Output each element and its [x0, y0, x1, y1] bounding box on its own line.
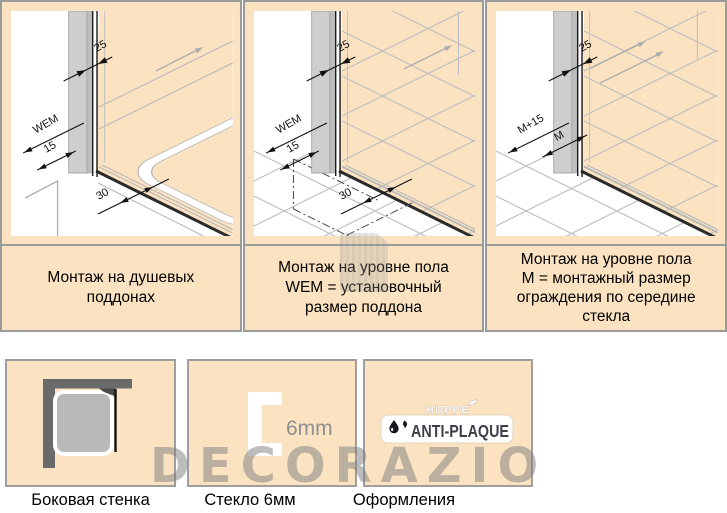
feature-caption-designs: Оформления [319, 491, 489, 511]
caption-line: стекла [582, 307, 630, 326]
floor-level-wem-drawing: 25 WEM 15 [254, 11, 476, 236]
panel-floor-level-m: 25 M+15 M Монтаж на уровн [485, 0, 727, 332]
tray-installation-svg: 25 WEM 15 [11, 11, 233, 236]
floor-level-m-drawing: 25 M+15 M [496, 11, 718, 236]
side-wall-icon [7, 361, 174, 485]
svg-text:15: 15 [42, 139, 59, 155]
svg-text:WEM: WEM [274, 113, 304, 137]
caption-line: WEM = установочный [285, 278, 441, 298]
droplet-highlight [391, 428, 393, 431]
panel-caption: Монтаж на уровне пола WEM = установочный… [245, 244, 483, 330]
shower-area [96, 11, 233, 236]
svg-text:15: 15 [284, 139, 301, 155]
anti-plaque-logo: HUPPE ANTI-PLAQUE [365, 361, 531, 485]
feature-anti-plaque: HUPPE ANTI-PLAQUE [363, 359, 533, 487]
svg-text:M+15: M+15 [516, 112, 546, 136]
panel-caption: Монтаж на душевых поддонах [2, 244, 240, 330]
glass-thickness-label: 6mm [286, 417, 333, 440]
panel-tray-installation: 25 WEM 15 [0, 0, 242, 332]
brand-flag [469, 400, 476, 406]
caption-line: размер поддона [305, 298, 422, 318]
anti-plaque-text: ANTI-PLAQUE [411, 421, 509, 441]
caption-line: Монтаж на уровне пола [521, 250, 692, 269]
feature-side-wall [5, 359, 176, 487]
catalog-page: 25 WEM 15 [0, 0, 727, 513]
caption-line: ограждения по середине [517, 288, 696, 307]
caption-line: М = монтажный размер [522, 269, 691, 288]
panel-caption: Монтаж на уровне пола М = монтажный разм… [487, 244, 725, 330]
caption-line: поддонах [87, 288, 155, 308]
installation-diagram-table: 25 WEM 15 [0, 0, 727, 332]
tray-installation-drawing: 25 WEM 15 [11, 11, 233, 236]
svg-text:WEM: WEM [31, 113, 61, 137]
floor-level-wem-svg: 25 WEM 15 [254, 11, 476, 236]
caption-line: Монтаж на уровне пола [278, 258, 449, 278]
panel-floor-level-wem: 25 WEM 15 [243, 0, 485, 332]
huppe-brand-text: HUPPE [426, 404, 470, 416]
feature-caption-glass: Стекло 6мм [165, 491, 335, 511]
shower-area [339, 11, 476, 236]
caption-line: Монтаж на душевых [47, 268, 194, 288]
glass-6mm-icon: 6mm [189, 361, 355, 485]
feature-glass-6mm: 6mm [187, 359, 357, 487]
feature-caption-side-wall: Боковая стенка [5, 491, 176, 511]
floor-level-m-svg: 25 M+15 M [496, 11, 718, 236]
svg-text:30: 30 [337, 186, 354, 202]
glass-profile-shape [248, 392, 282, 456]
